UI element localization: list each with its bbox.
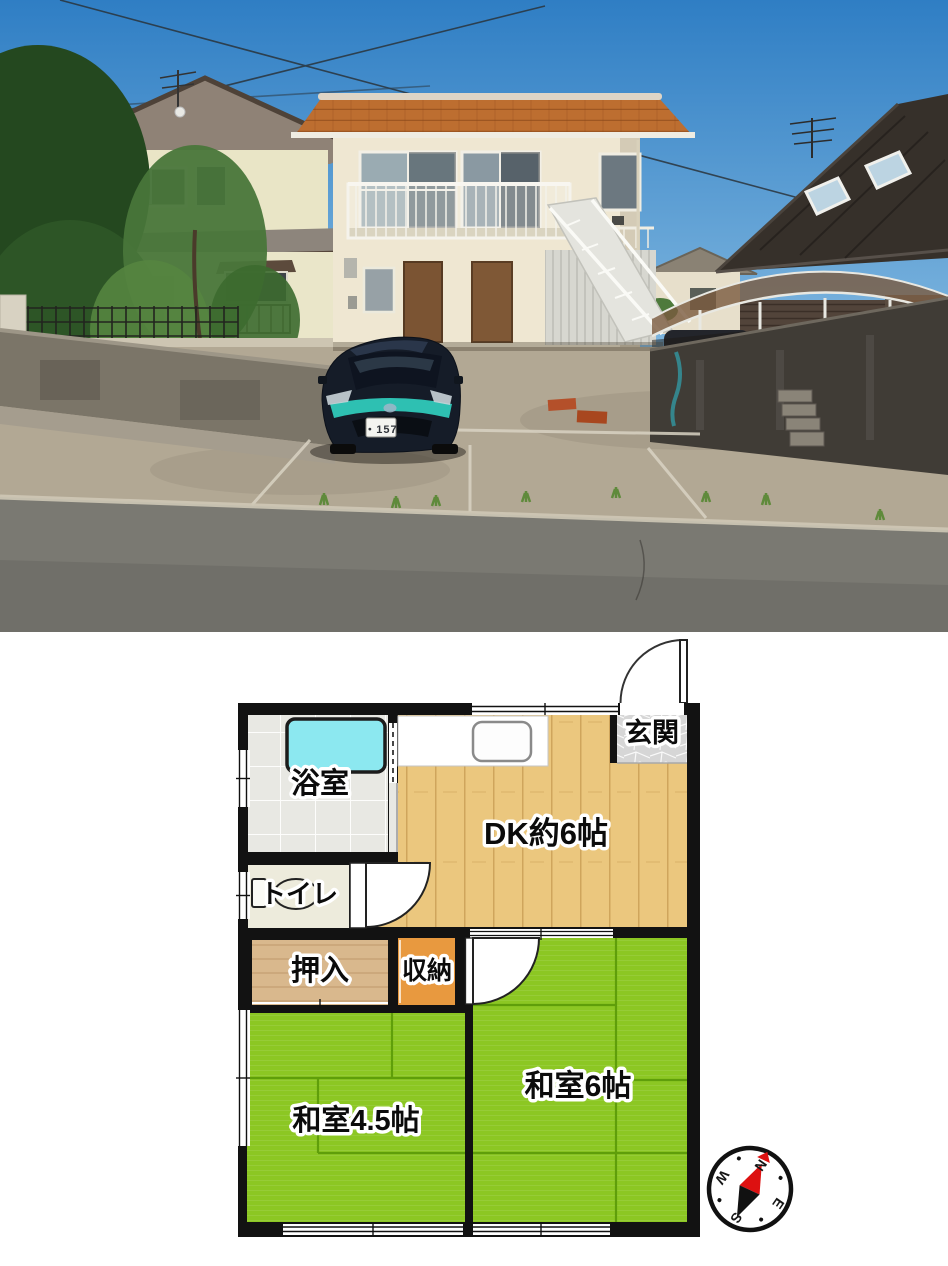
ground	[0, 298, 948, 632]
kitchen-sink	[473, 722, 531, 761]
room-closet: 押入	[252, 940, 388, 1008]
room-japanese-4-5: 和室4.5帖	[247, 1013, 465, 1222]
real-estate-listing: ・157	[0, 0, 948, 1266]
entrance-door	[621, 640, 688, 703]
door	[404, 262, 442, 342]
window	[236, 750, 250, 807]
room-entrance: 玄関	[610, 715, 687, 763]
svg-text:玄関: 玄関	[625, 717, 679, 748]
window	[473, 1224, 610, 1235]
svg-text:和室4.5帖: 和室4.5帖	[292, 1103, 419, 1137]
room-storage: 収納	[398, 938, 455, 1005]
floor-plan: 浴室 DK約6帖 玄関	[0, 630, 948, 1266]
window	[236, 1010, 250, 1146]
svg-text:押入: 押入	[291, 954, 349, 987]
svg-text:浴室: 浴室	[291, 766, 349, 800]
svg-text:・157: ・157	[364, 424, 397, 436]
room-bath: 浴室	[248, 715, 398, 852]
compass: N E S W	[696, 1135, 805, 1244]
svg-text:和室6帖: 和室6帖	[525, 1069, 632, 1103]
property-photo: ・157	[0, 0, 948, 632]
bathtub	[287, 719, 385, 772]
svg-text:DK約6帖: DK約6帖	[484, 816, 608, 851]
svg-text:収納: 収納	[402, 956, 452, 985]
room-japanese-6: 和室6帖	[466, 927, 688, 1222]
svg-text:トイレ: トイレ	[260, 879, 338, 909]
door	[472, 262, 512, 342]
license-plate: ・157	[364, 418, 397, 437]
room-toilet: トイレ	[248, 865, 349, 928]
toyota-emblem-icon	[384, 404, 397, 413]
window	[472, 703, 684, 715]
window	[283, 1224, 463, 1235]
window	[236, 872, 250, 919]
